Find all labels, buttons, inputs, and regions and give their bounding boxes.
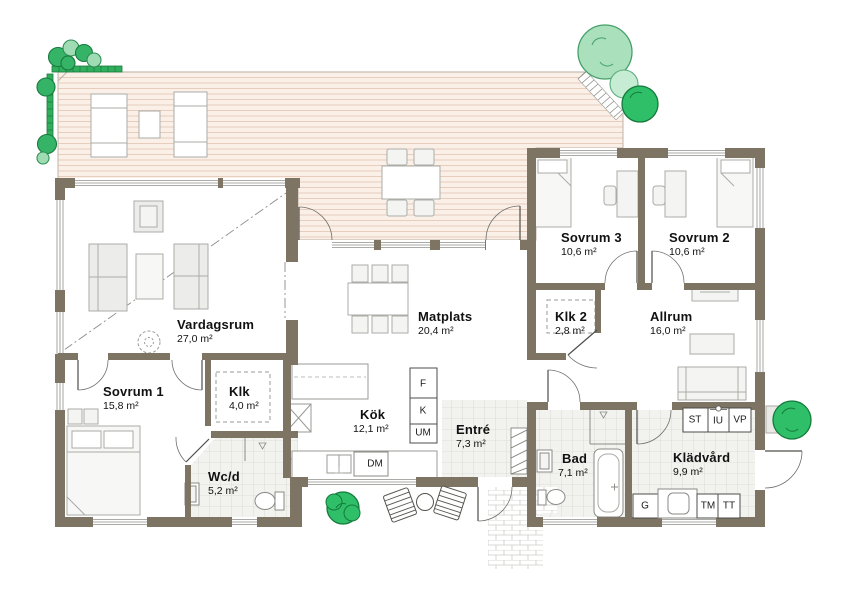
appliance-label-cleaning-cabinet: ST	[689, 415, 702, 426]
room-area: 10,6 m²	[561, 247, 622, 258]
room-name: Sovrum 1	[103, 385, 164, 399]
room-label-klk: Klk 4,0 m²	[229, 385, 259, 412]
bush-front	[326, 492, 360, 524]
room-name: Klädvård	[673, 451, 730, 465]
entrance-paving	[488, 487, 557, 569]
room-area: 5,2 m²	[208, 486, 240, 497]
patio-furniture	[383, 486, 467, 523]
room-label-kladvard: Klädvård 9,9 m²	[673, 451, 730, 478]
room-label-allrum: Allrum 16,0 m²	[650, 310, 692, 337]
room-name: Klk	[229, 385, 259, 399]
room-name: Allrum	[650, 310, 692, 324]
room-area: 7,1 m²	[558, 468, 588, 479]
appliance-label-wardrobe: G	[641, 501, 649, 512]
room-label-entre: Entré 7,3 m²	[456, 423, 490, 450]
appliance-label-heat-pump: VP	[733, 415, 746, 426]
room-area: 15,8 m²	[103, 401, 164, 412]
appliance-label-dryer: TT	[723, 501, 735, 512]
room-label-sovrum1: Sovrum 1 15,8 m²	[103, 385, 164, 412]
room-area: 27,0 m²	[177, 334, 254, 345]
room-label-kok: Kök 12,1 m²	[353, 408, 389, 435]
room-area: 9,9 m²	[673, 467, 730, 478]
room-name: Bad	[562, 452, 588, 466]
appliance-label-washer: TM	[701, 501, 715, 512]
room-area: 16,0 m²	[650, 326, 692, 337]
room-name: Matplats	[418, 310, 472, 324]
room-name: Sovrum 3	[561, 231, 622, 245]
room-area: 4,0 m²	[229, 401, 259, 412]
appliance-label-fridge: K	[420, 406, 427, 417]
room-name: Wc/d	[208, 470, 240, 484]
room-label-bad: Bad 7,1 m²	[558, 452, 588, 479]
appliance-label-oven-micro: UM	[415, 428, 431, 439]
room-area: 12,1 m²	[353, 424, 389, 435]
room-name: Sovrum 2	[669, 231, 730, 245]
room-label-sovrum2: Sovrum 2 10,6 m²	[669, 231, 730, 258]
tree-right	[773, 401, 811, 439]
appliance-label-freezer: F	[420, 379, 426, 390]
room-name: Vardagsrum	[177, 318, 254, 332]
room-name: Klk 2	[555, 310, 587, 324]
room-label-sovrum3: Sovrum 3 10,6 m²	[561, 231, 622, 258]
floor-plan-canvas: Vardagsrum 27,0 m² Sovrum 1 15,8 m² Klk …	[0, 0, 850, 600]
room-name: Kök	[360, 408, 389, 422]
room-label-wcd: Wc/d 5,2 m²	[208, 470, 240, 497]
room-area: 7,3 m²	[456, 439, 490, 450]
room-label-vardagsrum: Vardagsrum 27,0 m²	[177, 318, 254, 345]
room-area: 10,6 m²	[669, 247, 730, 258]
room-label-klk2: Klk 2 2,8 m²	[555, 310, 587, 337]
room-area: 20,4 m²	[418, 326, 472, 337]
appliance-label-sink-unit: IU	[713, 416, 723, 427]
room-area: 2,8 m²	[555, 326, 587, 337]
room-label-matplats: Matplats 20,4 m²	[418, 310, 472, 337]
room-name: Entré	[456, 423, 490, 437]
appliance-label-dishwasher: DM	[367, 459, 383, 470]
